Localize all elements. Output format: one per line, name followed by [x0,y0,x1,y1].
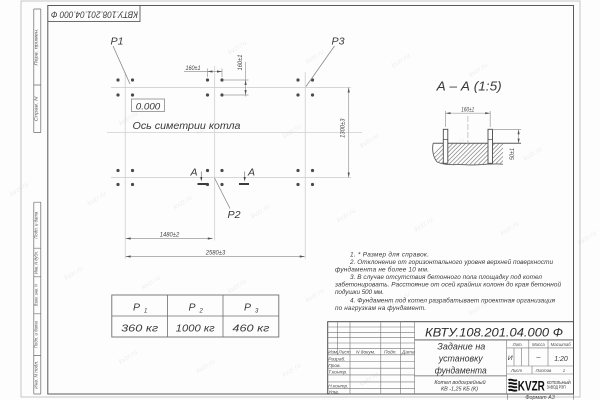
svg-text:Р: Р [133,302,140,314]
svg-text:Взам. инв. N: Взам. инв. N [34,284,40,306]
svg-text:Подп. и дата: Подп. и дата [34,211,40,238]
svg-text:А: А [190,167,198,179]
svg-text:Листов: Листов [535,368,552,373]
svg-text:Разраб.: Разраб. [328,356,345,362]
svg-text:Р: Р [188,302,195,314]
svg-text:460 кг: 460 кг [232,324,269,335]
svg-text:Лист: Лист [510,368,522,373]
svg-text:0.000: 0.000 [136,101,161,111]
svg-text:Котел водогрейный: Котел водогрейный [434,379,485,386]
svg-text:Подп. и дата: Подп. и дата [34,321,40,348]
svg-text:КВ -1,25 КБ (К): КВ -1,25 КБ (К) [441,387,478,393]
svg-text:А: А [247,167,255,179]
svg-text:Изм.Лист: Изм.Лист [328,350,351,356]
svg-text:–: – [535,352,541,361]
svg-text:Формат А3: Формат А3 [525,395,555,400]
svg-text:360 кг: 360 кг [121,324,158,335]
svg-text:забетонировать. Расстояние от: забетонировать. Расстояние от осей крайн… [334,281,561,289]
svg-text:Инв. N дубл.: Инв. N дубл. [34,251,40,274]
svg-text:Задание на: Задание на [437,342,485,353]
svg-text:2: 2 [199,309,204,315]
svg-text:Лит.: Лит. [512,342,523,347]
svg-text:установку: установку [438,354,484,365]
svg-text:по нагрузкам на фундамент.: по нагрузкам на фундамент. [335,304,426,312]
svg-text:Ось симетрии котла: Ось симетрии котла [133,121,241,132]
svg-text:Р: Р [244,302,251,314]
svg-text:Подп.: Подп. [384,350,397,356]
svg-text:КВТУ.108.201.04.000 Ф: КВТУ.108.201.04.000 Ф [425,326,563,340]
svg-text:КВТУ.108.201.04.000 Ф: КВТУ.108.201.04.000 Ф [51,8,138,19]
svg-text:И: И [508,355,513,362]
svg-text:А – А (1:5): А – А (1:5) [436,78,502,93]
svg-text:2580±3: 2580±3 [205,249,226,256]
svg-text:Утв.: Утв. [328,389,339,395]
svg-text:P1: P1 [111,36,124,48]
svg-text:Масштаб: Масштаб [551,342,572,347]
svg-text:Справ. N: Справ. N [34,96,40,122]
svg-text:1480±2: 1480±2 [160,231,180,238]
svg-text:2. Отклонение от горизонтально: 2. Отклонение от горизонтального уровня … [349,258,553,266]
svg-text:3. В случае отсутствия бетонно: 3. В случае отсутствия бетонного пола пл… [350,273,542,281]
svg-text:4. Фундамент под котел разраба: 4. Фундамент под котел разрабатывает про… [350,297,556,305]
svg-text:KVZR: KVZR [518,379,545,394]
svg-text:Масса: Масса [532,342,545,347]
svg-text:160±1: 160±1 [186,65,201,72]
svg-text:Дата: Дата [401,350,415,356]
svg-text:подушки 500 мм.: подушки 500 мм. [335,288,384,296]
svg-text:1. * Размер для справок.: 1. * Размер для справок. [350,251,429,259]
svg-text:N докум.: N докум. [356,350,375,356]
svg-text:Н.контр.: Н.контр. [328,384,348,390]
svg-text:1: 1 [144,309,147,315]
svg-text:фундамента не более 10 мм.: фундамента не более 10 мм. [335,266,429,274]
svg-text:1300±3: 1300±3 [340,118,347,138]
svg-text:1:20: 1:20 [554,356,568,363]
svg-text:1000 кг: 1000 кг [176,324,215,335]
svg-text:фундамента: фундамента [435,366,487,377]
svg-text:Пров.: Пров. [328,363,341,369]
svg-text:Перв. примен.: Перв. примен. [34,29,40,66]
svg-text:50±1: 50±1 [509,148,516,160]
svg-text:Т.контр.: Т.контр. [328,370,347,376]
svg-text:ЗАВОД РЭП: ЗАВОД РЭП [547,384,566,389]
svg-text:P2: P2 [228,209,241,221]
svg-text:Инв. N подл.: Инв. N подл. [34,361,40,389]
svg-text:160±1: 160±1 [461,106,474,113]
svg-text:160±1: 160±1 [237,55,244,71]
svg-text:P3: P3 [332,36,345,48]
